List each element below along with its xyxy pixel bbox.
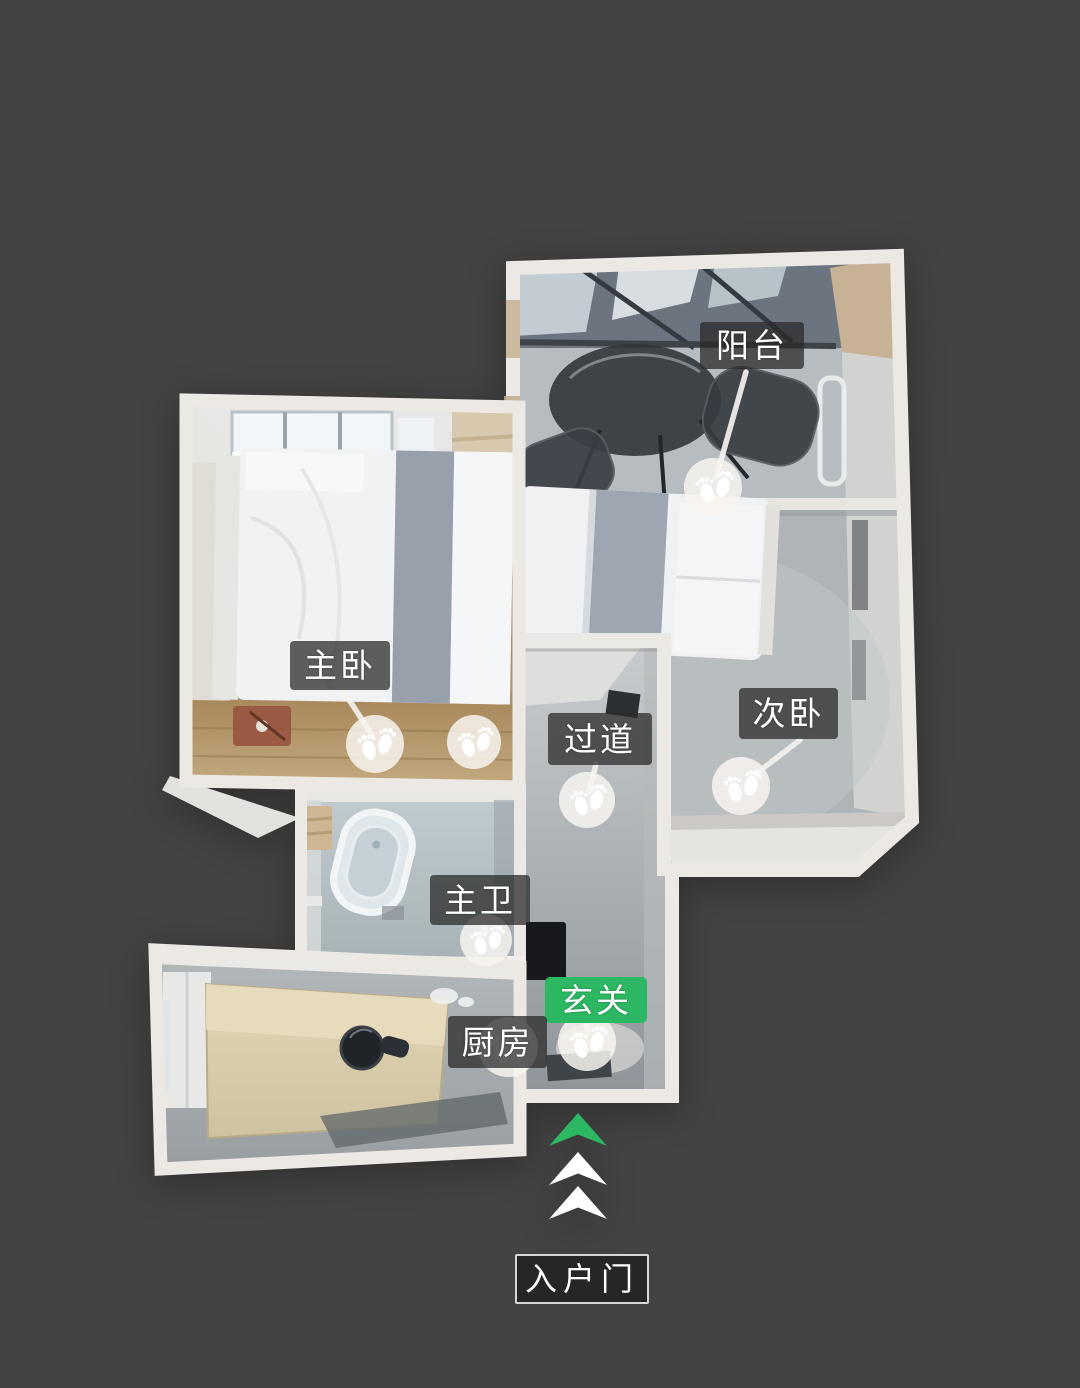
floorplan-canvas [0,0,1080,1388]
kitchen-pot [341,1027,383,1069]
dishes [430,988,458,1004]
room-label-entryway-highlighted[interactable]: 玄关 [545,977,647,1023]
floorplan-viewer: 阳台 主卧 次卧 过道 主卫 玄关 厨房 入户门 [0,0,1080,1388]
room-master-bedroom[interactable] [162,400,519,838]
entrance-direction-arrows[interactable] [549,1113,607,1219]
waypoint-footprints-icon[interactable] [684,458,742,516]
entrance-door-label: 入户门 [515,1254,649,1304]
room-label-kitchen[interactable]: 厨房 [448,1016,547,1068]
dishes [458,997,474,1007]
room-label-hallway[interactable]: 过道 [548,713,652,765]
wall-mounted-unit [852,520,868,610]
chevron-up-arrow[interactable] [549,1186,607,1219]
chevron-up-arrow[interactable] [549,1152,607,1185]
bathroom-item [306,896,322,906]
waypoint-footprints-icon[interactable] [447,715,501,769]
exterior-wall-texture [506,300,520,358]
wall-mounted-unit [852,640,866,700]
chevron-up-arrow-green[interactable] [549,1113,607,1146]
hallway-top-wall [513,633,671,648]
waypoint-footprints-icon[interactable] [559,772,615,828]
room-label-balcony[interactable]: 阳台 [700,322,804,369]
room-label-master-bathroom[interactable]: 主卫 [430,875,530,925]
louvre-shelf [306,806,332,850]
room-label-second-bedroom[interactable]: 次卧 [739,688,838,739]
bathroom-item [382,906,404,920]
waypoint-footprints-icon[interactable] [346,715,404,773]
shelf-slat [306,832,332,834]
shelf-slat [306,818,332,820]
waypoint-footprints-icon[interactable] [712,757,770,815]
room-label-master-bedroom[interactable]: 主卧 [290,641,390,690]
